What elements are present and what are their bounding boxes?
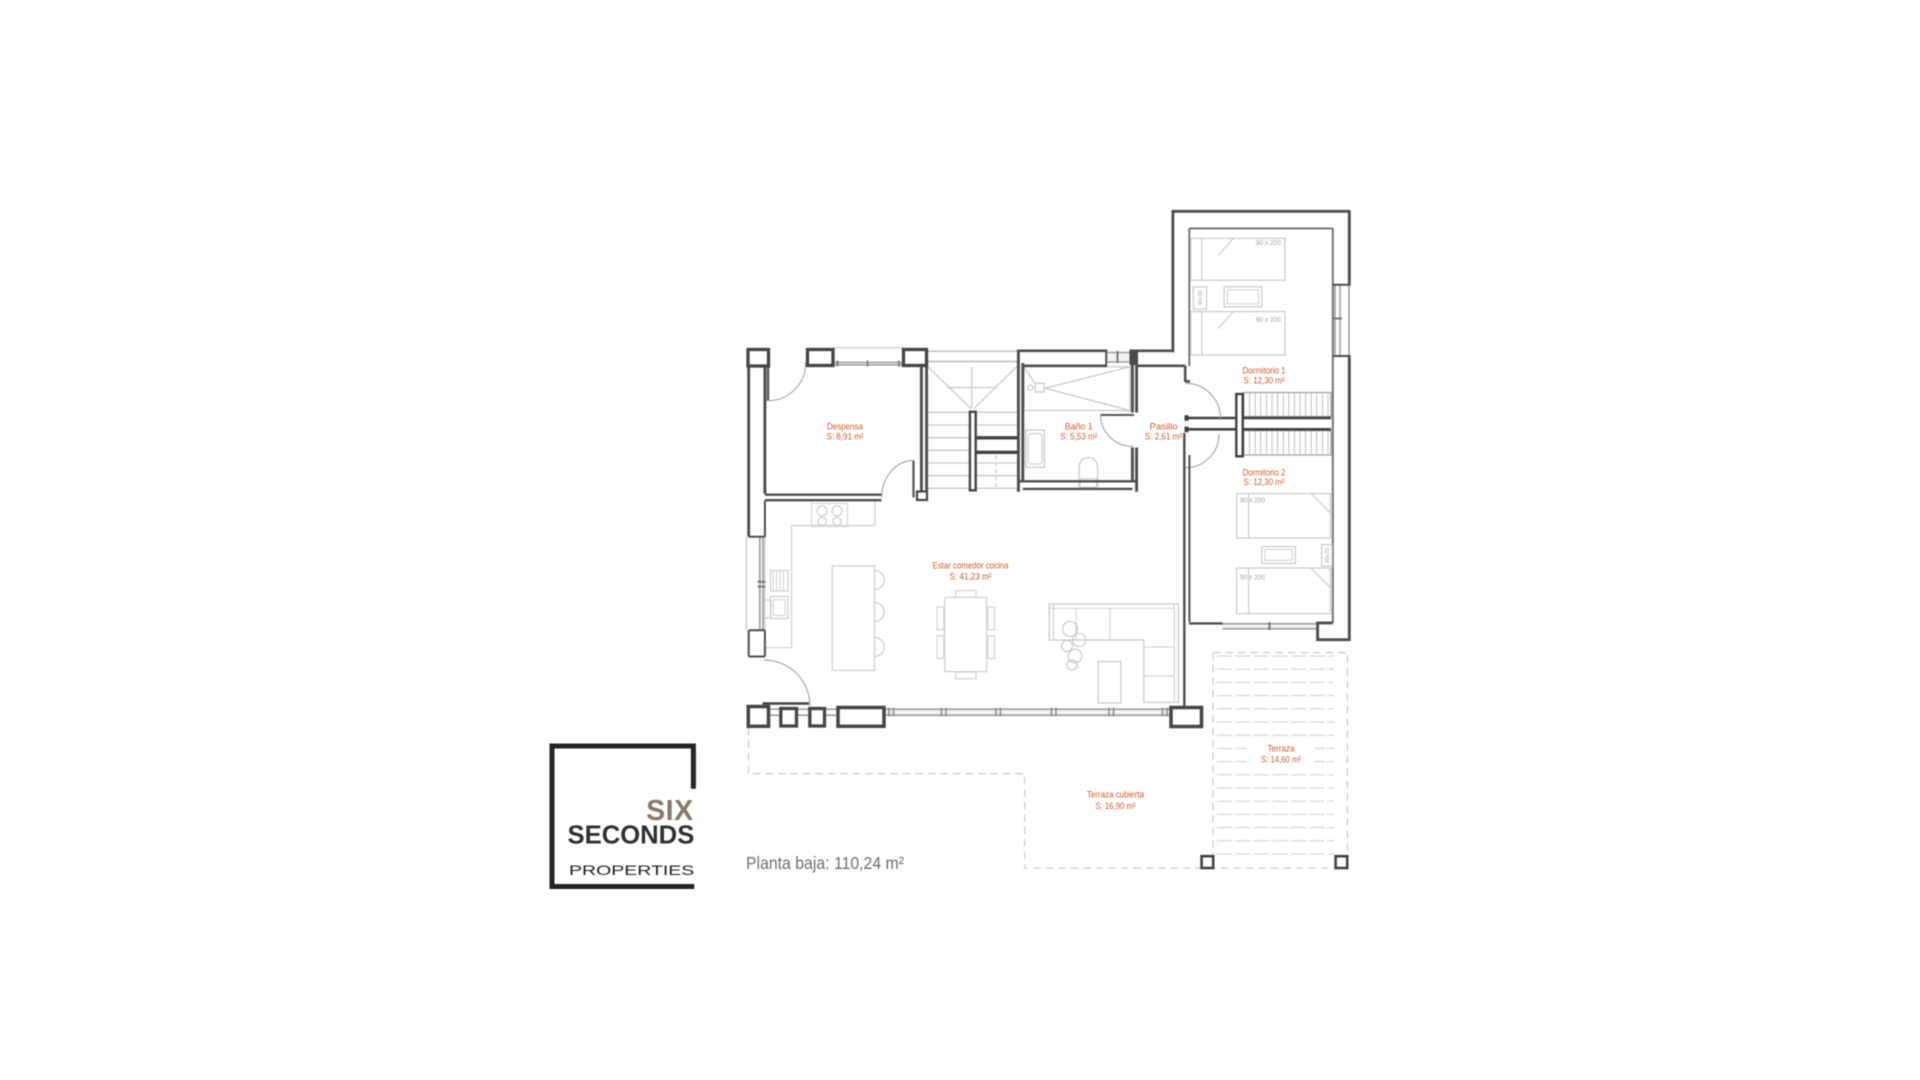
svg-text:Terraza cubierta: Terraza cubierta xyxy=(1087,790,1145,801)
svg-text:90 x 200: 90 x 200 xyxy=(1256,240,1281,247)
svg-text:PROPERTIES: PROPERTIES xyxy=(569,863,694,878)
svg-text:S: 5,53 m²: S: 5,53 m² xyxy=(1060,431,1097,442)
svg-text:S: 41,23 m²: S: 41,23 m² xyxy=(950,572,992,583)
svg-text:S: 2,61 m²: S: 2,61 m² xyxy=(1145,431,1182,442)
svg-text:S: 16,90 m²: S: 16,90 m² xyxy=(1096,801,1136,812)
svg-text:S: 12,30 m²: S: 12,30 m² xyxy=(1244,477,1285,488)
svg-text:Planta baja: 110,24 m²: Planta baja: 110,24 m² xyxy=(746,853,904,873)
svg-text:S: 12,30 m²: S: 12,30 m² xyxy=(1244,375,1285,386)
svg-text:90 x 200: 90 x 200 xyxy=(1240,498,1265,505)
svg-text:Terraza: Terraza xyxy=(1268,744,1296,755)
svg-text:90 x 200: 90 x 200 xyxy=(1240,575,1265,582)
svg-text:S: 14,60 m²: S: 14,60 m² xyxy=(1261,755,1301,766)
svg-text:S: 8,91 m²: S: 8,91 m² xyxy=(827,431,864,442)
svg-text:Estar comedor cocina: Estar comedor cocina xyxy=(933,560,1010,571)
svg-text:40x35: 40x35 xyxy=(1198,291,1204,306)
svg-text:60x70: 60x70 xyxy=(1325,548,1331,563)
svg-text:90 x 200: 90 x 200 xyxy=(1256,317,1281,324)
svg-text:SECONDS: SECONDS xyxy=(568,820,695,850)
